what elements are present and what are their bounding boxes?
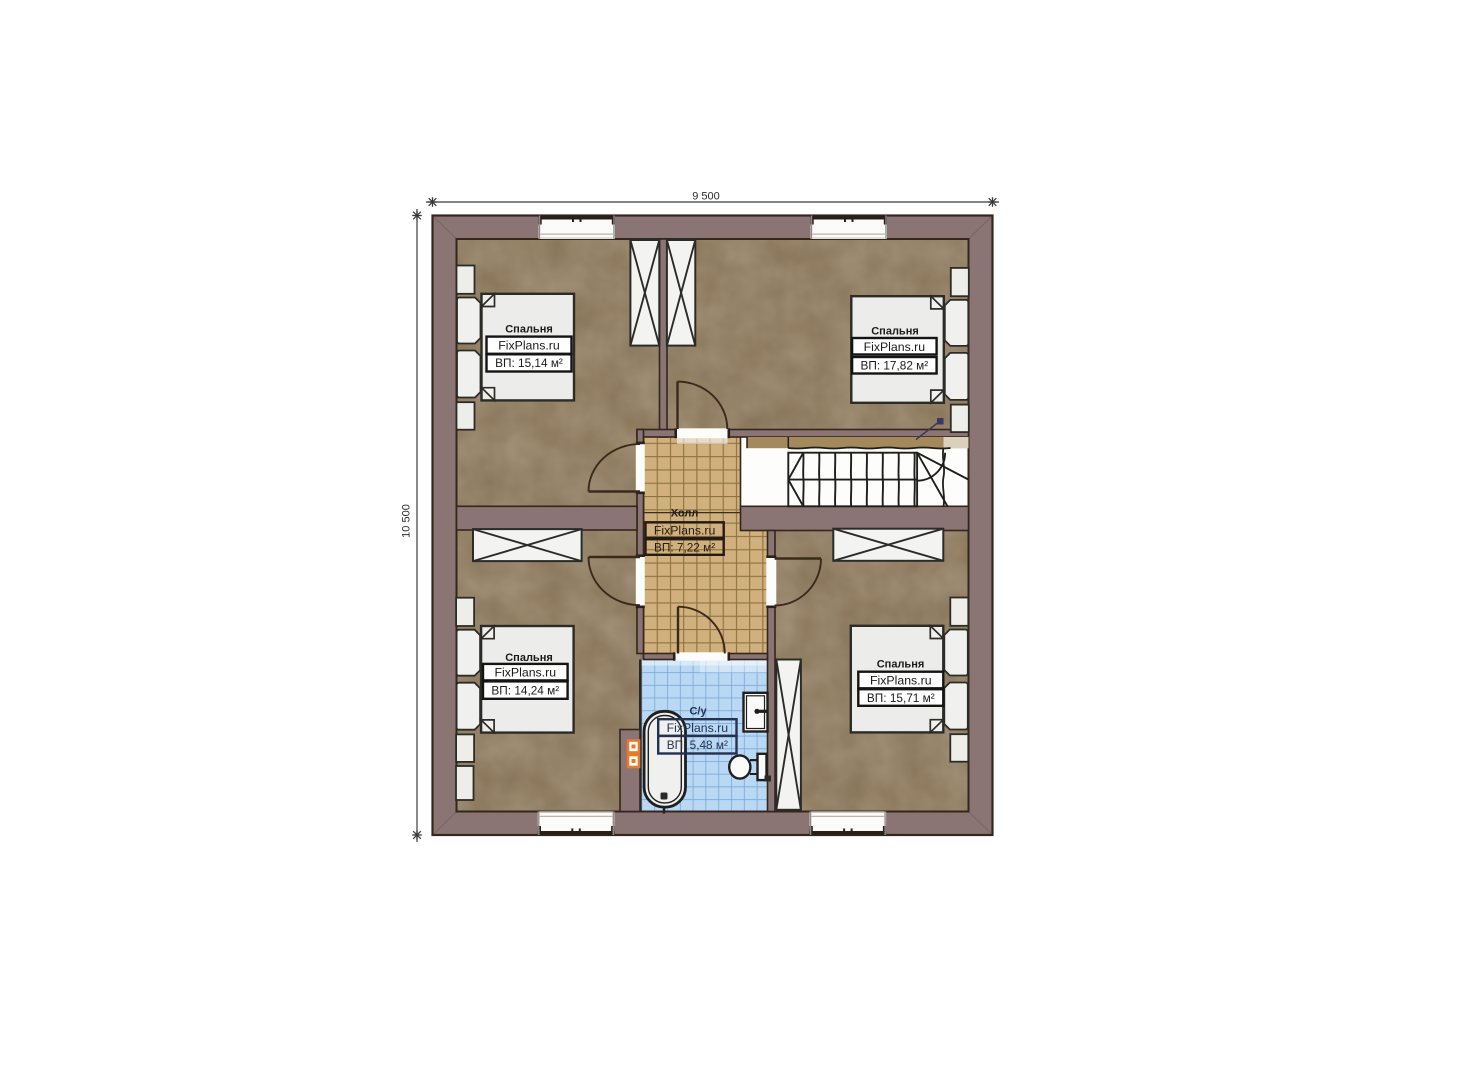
svg-text:Спальня: Спальня	[877, 659, 925, 671]
svg-text:FixPlans.ru: FixPlans.ru	[864, 340, 926, 354]
svg-text:ВП: 15,71 м²: ВП: 15,71 м²	[867, 691, 935, 705]
svg-text:FixPlans.ru: FixPlans.ru	[870, 674, 932, 688]
svg-text:С/у: С/у	[689, 706, 707, 718]
svg-text:FixPlans.ru: FixPlans.ru	[495, 666, 557, 680]
svg-text:9 500: 9 500	[692, 191, 720, 203]
svg-text:Холл: Холл	[671, 507, 699, 519]
svg-text:ВП: 7,22 м²: ВП: 7,22 м²	[654, 540, 715, 554]
svg-text:FixPlans.ru: FixPlans.ru	[654, 524, 716, 538]
svg-text:FixPlans.ru: FixPlans.ru	[667, 721, 729, 735]
svg-text:FixPlans.ru: FixPlans.ru	[498, 339, 560, 353]
svg-text:Спальня: Спальня	[505, 324, 553, 336]
svg-text:ВП: 17,82 м²: ВП: 17,82 м²	[860, 359, 928, 373]
svg-text:ВП: 5,48 м²: ВП: 5,48 м²	[667, 738, 728, 752]
svg-text:ВП: 14,24 м²: ВП: 14,24 м²	[491, 683, 559, 697]
svg-text:Спальня: Спальня	[871, 326, 919, 338]
svg-text:ВП: 15,14 м²: ВП: 15,14 м²	[495, 356, 563, 370]
svg-text:Спальня: Спальня	[505, 652, 553, 664]
svg-text:10 500: 10 500	[401, 504, 413, 538]
